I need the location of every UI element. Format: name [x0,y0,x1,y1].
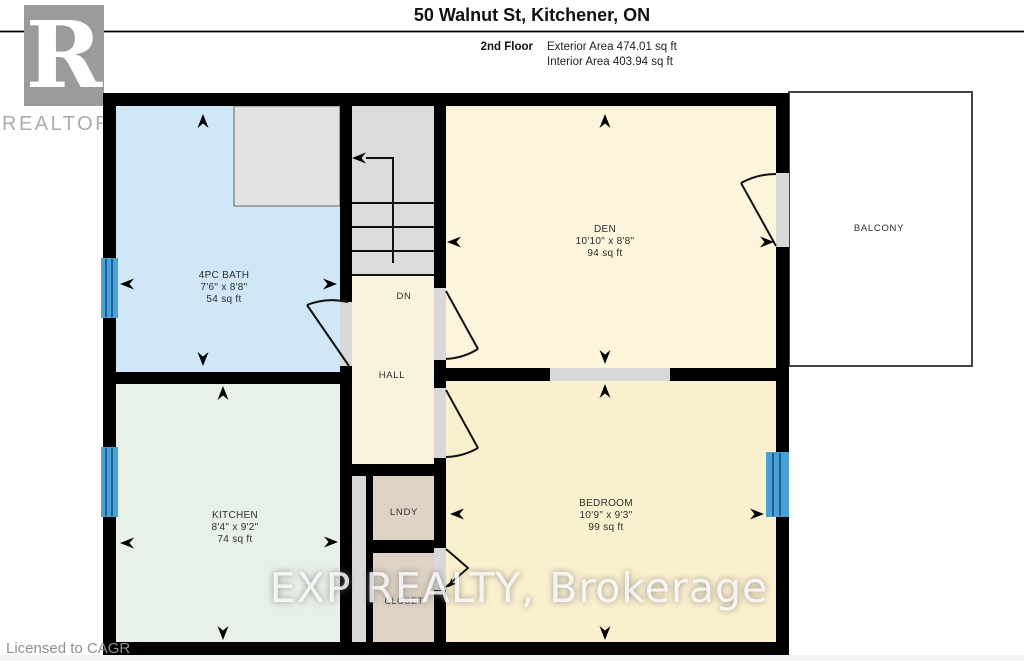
license-text: Licensed to CAGR [6,640,130,657]
window-kitchen [101,447,118,517]
bath-bulkhead-inset [234,106,340,206]
hall-label: HALL [379,370,406,381]
exterior-area-label: Exterior Area 474.01 sq ft [547,41,678,53]
brokerage-watermark: EXP REALTY, Brokerage [270,564,768,612]
bedroom-name: BEDROOM [579,498,633,509]
realtor-logo-letter: R [26,1,103,109]
window-bedroom [766,452,789,517]
threshold-den-door [434,288,446,360]
balcony-label: BALCONY [854,223,904,234]
page-title: 50 Walnut St, Kitchener, ON [414,5,650,25]
page-edge-strip [0,655,1024,661]
den-dims: 10'10" x 8'8" [576,236,635,247]
floor-plan-svg: 50 Walnut St, Kitchener, ON 2nd Floor Ex… [0,0,1024,661]
floor-plan-page: 50 Walnut St, Kitchener, ON 2nd Floor Ex… [0,0,1024,661]
threshold-bedroom-door [434,388,446,458]
bedroom-area: 99 sq ft [588,522,623,533]
opening-den-bedroom [550,368,670,381]
window-bath [101,258,118,318]
kitchen-area: 74 sq ft [217,534,252,545]
wall-bath-kitchen [103,372,352,384]
stairs-dn-label: DN [396,291,411,302]
threshold-balcony-door [776,173,789,247]
hall-gray-strip [352,476,366,642]
den-area: 94 sq ft [587,248,622,259]
bath-name: 4PC BATH [199,270,250,281]
kitchen-dims: 8'4" x 9'2" [211,522,258,533]
bedroom-dims: 10'9" x 9'3" [580,510,633,521]
den-name: DEN [594,224,616,235]
floor-label: 2nd Floor [481,41,534,53]
bath-area: 54 sq ft [206,294,241,305]
bath-dims: 7'6" x 8'8" [200,282,247,293]
wall-hall-laundry [352,464,446,476]
kitchen-name: KITCHEN [212,510,258,521]
laundry-label: LNDY [390,507,418,518]
interior-area-label: Interior Area 403.94 sq ft [547,56,674,68]
